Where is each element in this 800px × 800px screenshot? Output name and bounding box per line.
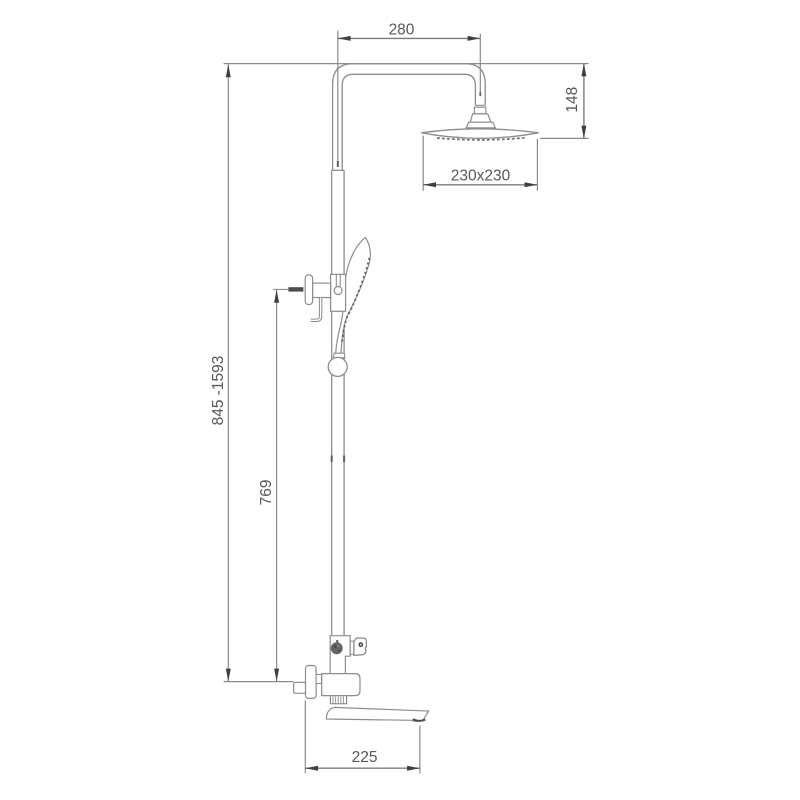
svg-text:280: 280	[389, 21, 415, 38]
svg-text:148: 148	[564, 87, 581, 113]
svg-text:845 -1593: 845 -1593	[210, 356, 227, 426]
svg-text:230x230: 230x230	[451, 168, 511, 185]
svg-text:769: 769	[258, 479, 275, 505]
svg-text:225: 225	[352, 749, 378, 766]
